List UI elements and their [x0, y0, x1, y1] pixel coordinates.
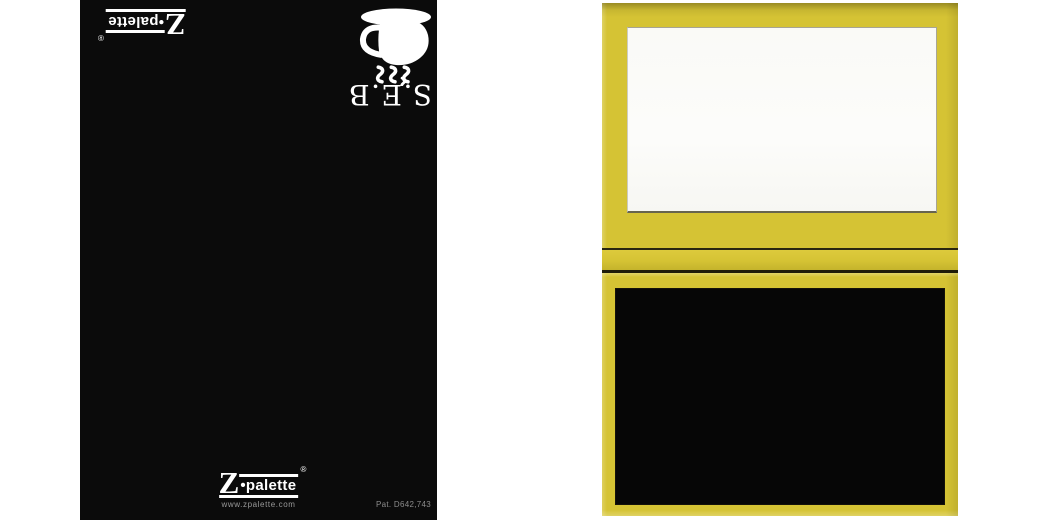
- logo-wordmark: •palette: [106, 13, 165, 33]
- registered-trademark-icon: ®: [98, 33, 104, 41]
- registered-trademark-icon: ®: [300, 466, 306, 474]
- black-palette-back: Z •palette ® S.E.: [80, 0, 437, 520]
- logo-name: palette: [246, 477, 296, 494]
- zpalette-logo: Z •palette ®: [219, 471, 299, 498]
- coffee-cup-icon: [358, 8, 432, 86]
- palette-lid: [602, 3, 958, 248]
- base-magnetic-black-panel: [615, 288, 945, 505]
- logo-z-letter: Z: [219, 471, 239, 494]
- yellow-palette-open: [602, 3, 958, 516]
- product-photo-canvas: Z •palette ® S.E.: [0, 0, 1040, 520]
- coffee-cup-icon-svg: [358, 8, 432, 86]
- logo-z-letter: Z: [166, 13, 186, 36]
- patent-number-text: Pat. D642,743: [376, 500, 431, 509]
- logo-wordmark: •palette: [239, 474, 298, 494]
- logo-bullet: •: [158, 13, 164, 30]
- zpalette-logo-top-rotated: Z •palette ®: [106, 9, 186, 36]
- logo-name: palette: [108, 13, 158, 30]
- palette-hinge: [602, 250, 958, 270]
- palette-base: [602, 273, 958, 517]
- lid-inner-white-panel: [627, 27, 937, 213]
- zpalette-logo: Z •palette ®: [106, 9, 186, 36]
- monogram-text: S.E.B: [352, 78, 432, 110]
- zpalette-logo-bottom: Z •palette ®: [219, 471, 299, 498]
